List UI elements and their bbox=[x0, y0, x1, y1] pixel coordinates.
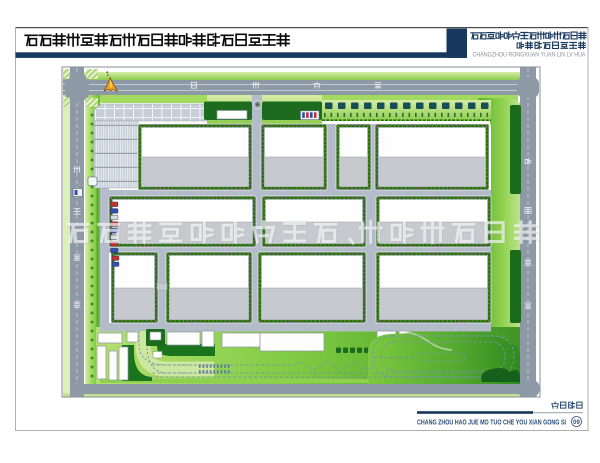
svg-text:09: 09 bbox=[573, 420, 580, 426]
svg-text:CHANGZHOU RONGXUAN YUAN LIN LV: CHANGZHOU RONGXUAN YUAN LIN LV HUA bbox=[473, 52, 587, 59]
svg-text:CHANG ZHOU HAO JUE MO TUO CHE: CHANG ZHOU HAO JUE MO TUO CHE YOU XIAN G… bbox=[417, 420, 566, 427]
